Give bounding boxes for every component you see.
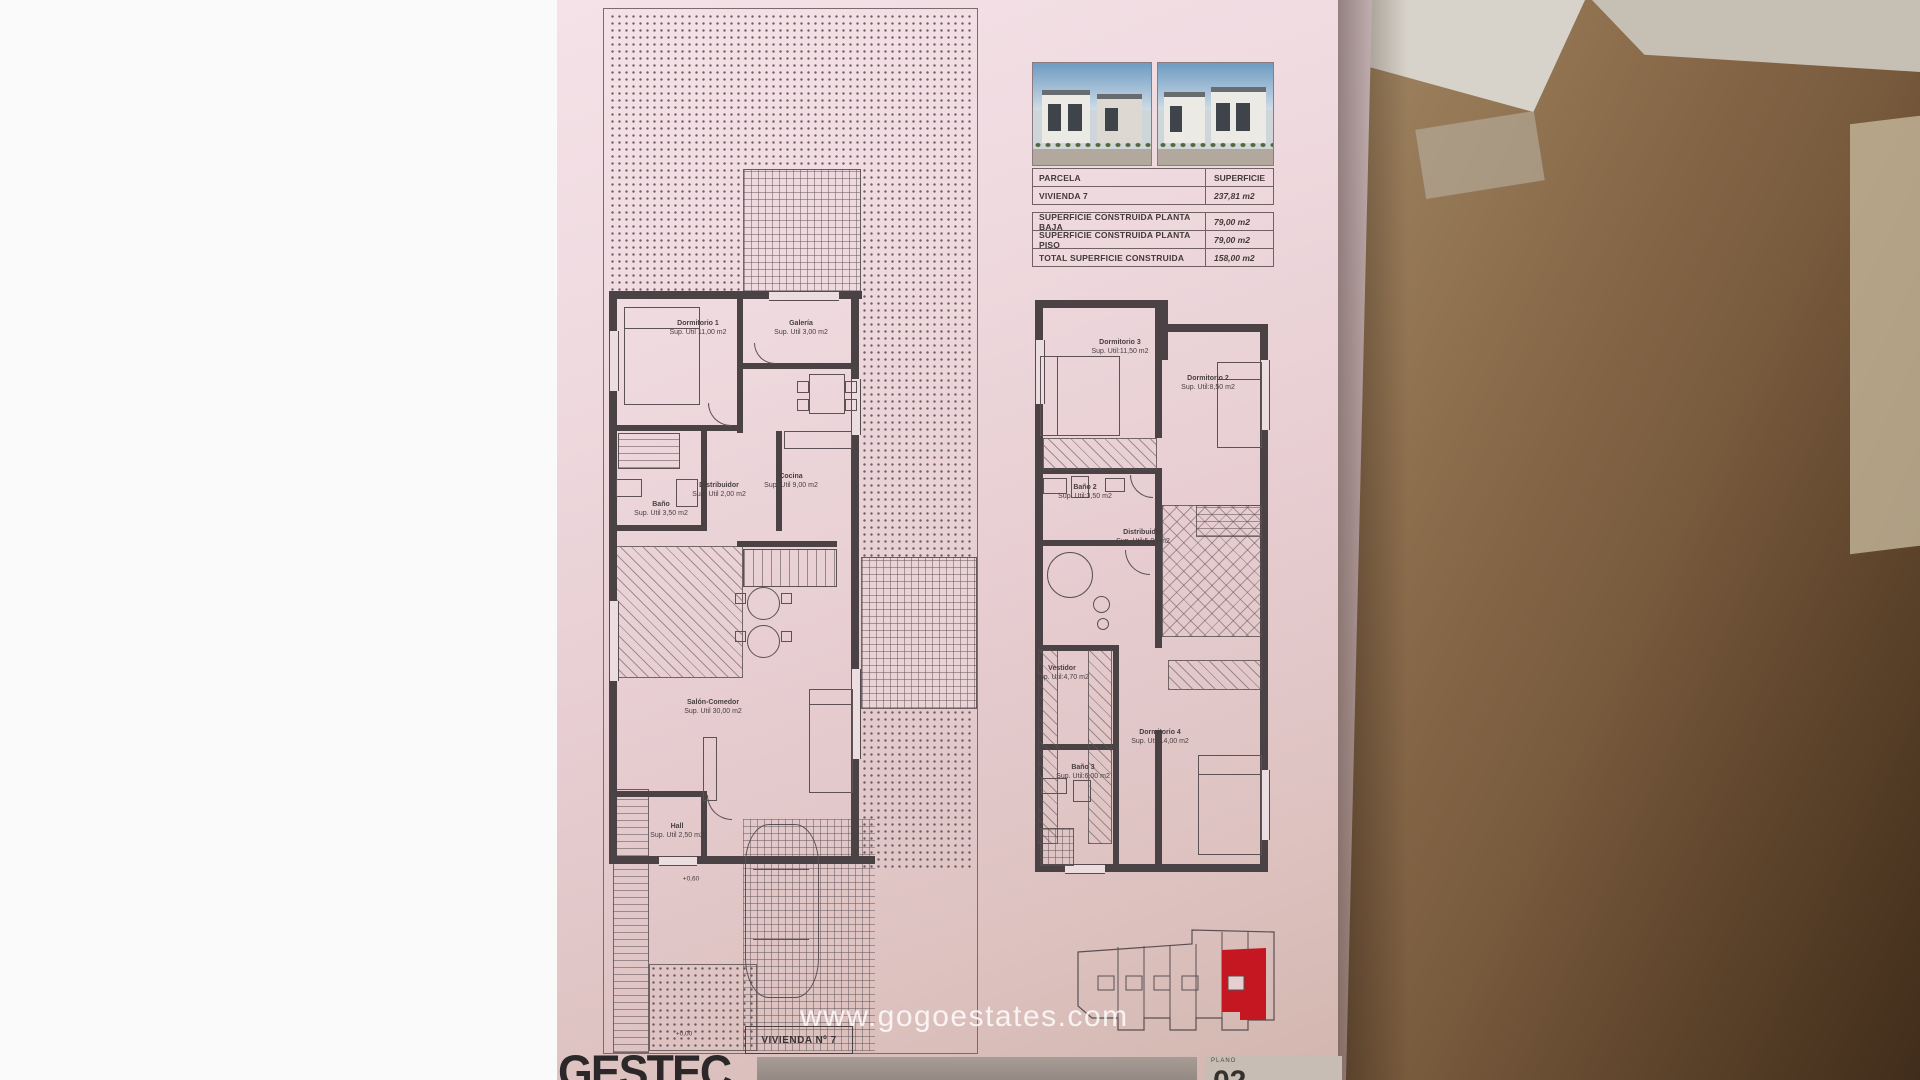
chair-symbol <box>781 593 792 604</box>
broken-tile <box>1850 116 1920 555</box>
shower-symbol <box>618 433 680 469</box>
tile-patch <box>1040 828 1074 866</box>
tv-unit-symbol <box>703 737 717 801</box>
door-swing-arc <box>708 403 731 426</box>
terrace-tile-hatch <box>861 557 977 709</box>
wall-segment <box>1155 730 1162 865</box>
kitchen-counter-symbol <box>784 431 852 449</box>
room-label-distribuidor: DistribuidorSup. Util 2,00 m2 <box>692 481 746 499</box>
wall-segment <box>1168 324 1268 332</box>
chair-symbol <box>845 399 857 411</box>
window <box>1170 106 1182 132</box>
watermark-text: www.gogoestates.com <box>800 1000 1129 1034</box>
broken-tile <box>1592 0 1920 72</box>
patio-diagonal-hatch <box>613 546 743 678</box>
wall-segment <box>609 856 875 864</box>
plano-label: PLANO <box>1211 1058 1236 1064</box>
galeria-tile-hatch <box>743 169 861 299</box>
chair-symbol <box>735 593 746 604</box>
unit-patio-square <box>1126 976 1142 990</box>
wall-segment <box>1035 300 1168 308</box>
garden-dot-hatch <box>861 709 975 869</box>
building-render <box>1042 90 1089 144</box>
window <box>1105 108 1118 130</box>
car-window-line <box>753 939 809 940</box>
room-label-dormitorio4: Dormitorio 4Sup. Util:14,00 m2 <box>1131 728 1189 746</box>
room-label-bano2: Baño 2Sup. Util:3,50 m2 <box>1058 483 1112 501</box>
unit-title-text: VIVIENDA Nº 7 <box>761 1035 836 1046</box>
wall-segment <box>609 425 743 431</box>
chair-symbol <box>845 381 857 393</box>
stairs-treads <box>1196 505 1262 537</box>
sink-symbol <box>616 479 642 497</box>
cell-vivienda: VIVIENDA 7 <box>1033 191 1205 201</box>
window <box>1216 103 1230 131</box>
cell-label: SUPERFICIE CONSTRUIDA PLANTA BAJA <box>1033 212 1205 232</box>
wall-segment <box>737 291 743 433</box>
cell-label: SUPERFICIE CONSTRUIDA PLANTA PISO <box>1033 230 1205 250</box>
room-label-dormitorio1: Dormitorio 1Sup. Util 11,00 m2 <box>669 319 726 337</box>
cell-value: 158,00 m2 <box>1205 249 1273 266</box>
dining-table-symbol <box>747 587 780 620</box>
toilet-symbol <box>1073 780 1091 802</box>
chair-symbol <box>735 631 746 642</box>
building-render <box>1097 94 1142 144</box>
room-label-dormitorio3: Dormitorio 3Sup. Util:11,50 m2 <box>1091 338 1148 356</box>
level-mark: +0,60 <box>683 876 699 883</box>
car-symbol <box>745 824 819 998</box>
wardrobe-hanger-symbol <box>1168 660 1262 690</box>
table-row: SUPERFICIE CONSTRUIDA PLANTA BAJA 79,00 … <box>1033 213 1273 230</box>
unit-patio-square <box>1228 976 1244 990</box>
wardrobe-hanger-symbol <box>1043 438 1157 470</box>
table-row: SUPERFICIE CONSTRUIDA PLANTA PISO 79,00 … <box>1033 230 1273 248</box>
site-key-plan <box>1070 920 1310 1060</box>
cell-superficie: SUPERFICIE <box>1205 169 1273 186</box>
cell-parcel-area: 237,81 m2 <box>1205 187 1273 204</box>
window-symbol <box>769 291 839 301</box>
table-row: TOTAL SUPERFICIE CONSTRUIDA 158,00 m2 <box>1033 248 1273 266</box>
cell-label: TOTAL SUPERFICIE CONSTRUIDA <box>1033 253 1205 263</box>
table-row: VIVIENDA 7 237,81 m2 <box>1033 186 1273 204</box>
door-opening <box>659 856 697 866</box>
porch-dot-hatch <box>649 964 757 1051</box>
car-windshield-line <box>753 869 809 870</box>
first-floor-plan: Dormitorio 3Sup. Util:11,50 m2 Dormitori… <box>1035 300 1268 880</box>
room-label-hall: HallSup. Util 2,50 m2 <box>650 822 704 840</box>
side-steps-hatch <box>613 789 649 1053</box>
room-label-galeria: GaleríaSup. Util 3,00 m2 <box>774 319 828 337</box>
window <box>1048 104 1061 131</box>
wall-segment <box>609 791 707 797</box>
wall-segment <box>701 425 707 531</box>
title-block-band <box>757 1057 1197 1080</box>
cell-value: 79,00 m2 <box>1205 231 1273 248</box>
window <box>1068 104 1081 131</box>
room-label-dormitorio2: Dormitorio 2Sup. Util:8,50 m2 <box>1181 374 1235 392</box>
wall-segment <box>1155 308 1162 438</box>
render-photo-1 <box>1032 62 1152 166</box>
render-photo-2 <box>1157 62 1274 166</box>
window <box>1236 103 1250 131</box>
unit-patio-square <box>1098 976 1114 990</box>
plant-symbol <box>1093 596 1110 613</box>
background-floor <box>1330 0 1920 1080</box>
level-mark: +0,00 <box>676 1031 692 1038</box>
wall-segment <box>1155 468 1162 648</box>
sofa-back-symbol <box>809 689 853 705</box>
cell-parcela: PARCELA <box>1033 173 1205 183</box>
bed-pillow-symbol <box>1040 356 1058 436</box>
plano-block: PLANO 02 <box>1205 1056 1342 1080</box>
wardrobe-hanger-symbol <box>1088 650 1112 844</box>
room-label-vestidor: VestidorSup. Util:4,70 m2 <box>1035 664 1089 682</box>
broken-tile <box>1415 111 1544 199</box>
door-swing-arc <box>707 795 732 820</box>
plano-number: 02 <box>1213 1065 1246 1080</box>
chair-symbol <box>797 381 809 393</box>
garden-dot-hatch <box>861 293 975 565</box>
gestec-logo: GESTEC <box>558 1048 730 1080</box>
plant-symbol <box>1097 618 1109 630</box>
door-swing-arc <box>1125 550 1150 575</box>
parcel-table: PARCELA SUPERFICIE VIVIENDA 7 237,81 m2 <box>1032 168 1274 205</box>
room-label-distribuidor: DistribuidorSup. Util:5,00 m2 <box>1116 528 1170 546</box>
unit-patio-square <box>1154 976 1170 990</box>
wall-segment <box>743 363 859 369</box>
ground <box>1158 149 1273 165</box>
chair-symbol <box>797 399 809 411</box>
dining-table-symbol <box>747 625 780 658</box>
door-swing-arc <box>1130 475 1153 498</box>
kitchen-table-symbol <box>809 374 845 414</box>
paper-edge-shadow <box>1338 0 1408 1080</box>
room-label-salon-comedor: Salón-ComedorSup. Util 30,00 m2 <box>684 698 742 716</box>
building-render <box>1164 92 1205 144</box>
wall-segment <box>737 541 837 547</box>
cell-value: 79,00 m2 <box>1205 213 1273 230</box>
ground <box>1033 149 1151 165</box>
built-surface-table: SUPERFICIE CONSTRUIDA PLANTA BAJA 79,00 … <box>1032 212 1274 267</box>
tree-symbol <box>1047 552 1093 598</box>
ground-floor-plan: Dormitorio 1Sup. Util 11,00 m2 GaleríaSu… <box>603 8 978 1054</box>
bed-pillow-symbol <box>1198 755 1262 775</box>
room-label-bano3: Baño 3Sup. Util:6,00 m2 <box>1056 763 1110 781</box>
door-swing-arc <box>754 343 775 364</box>
window-symbol <box>609 601 619 681</box>
wall-segment <box>609 525 706 531</box>
room-label-bano: BañoSup. Util 3,50 m2 <box>634 500 688 518</box>
stairs-symbol <box>743 549 837 587</box>
table-row: PARCELA SUPERFICIE <box>1033 169 1273 186</box>
chair-symbol <box>781 631 792 642</box>
window-symbol <box>609 331 619 391</box>
wall-segment <box>1113 645 1119 865</box>
room-label-cocina: CocinaSup. Util 9,00 m2 <box>764 472 818 490</box>
building-render <box>1211 87 1266 143</box>
photo-of-floor-plan: Dormitorio 1Sup. Util 11,00 m2 GaleríaSu… <box>0 0 1920 1080</box>
